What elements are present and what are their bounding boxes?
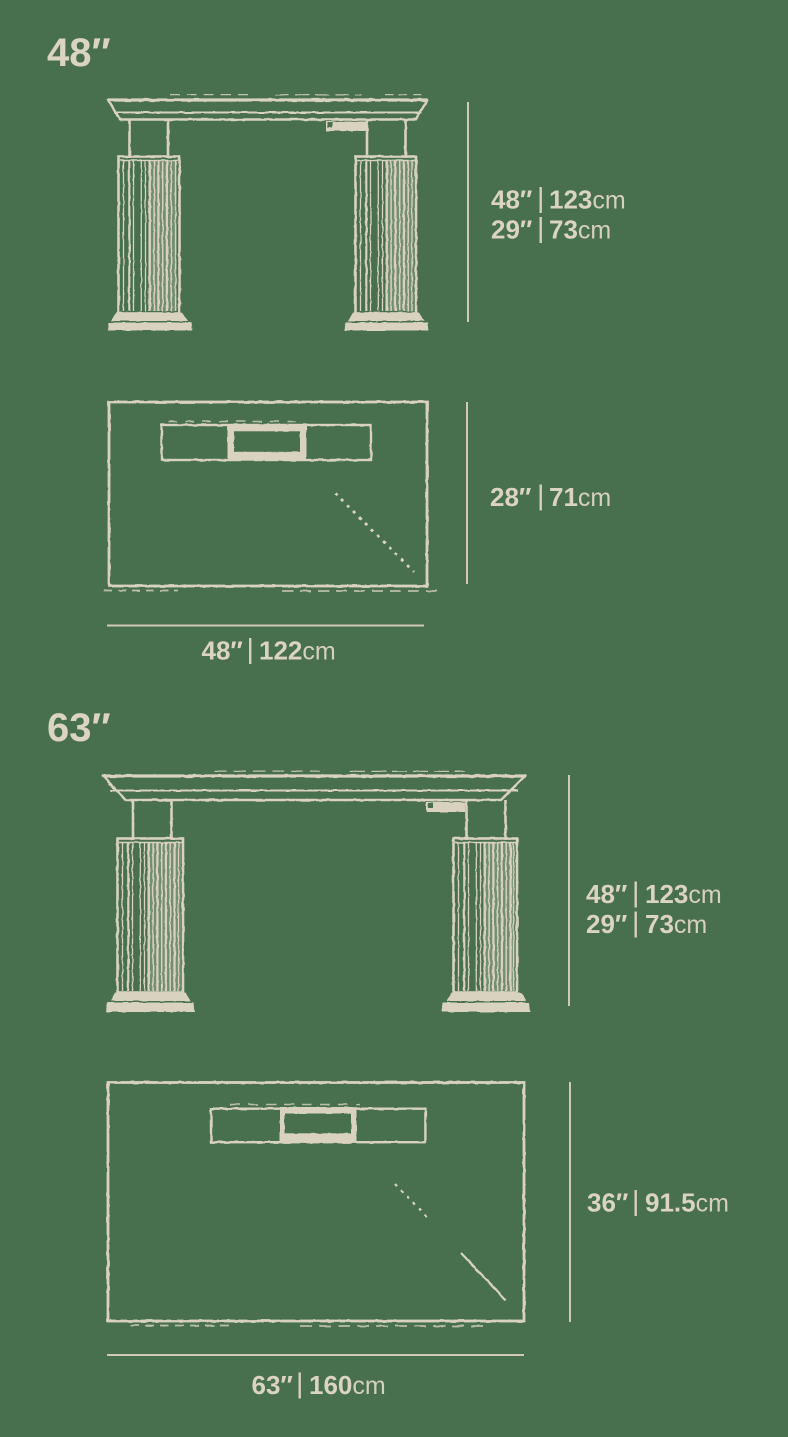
- svg-text:123cm: 123cm: [549, 185, 626, 215]
- svg-text:91.5cm: 91.5cm: [645, 1188, 729, 1218]
- svg-text:29″: 29″: [491, 215, 532, 245]
- svg-text:122cm: 122cm: [259, 636, 336, 666]
- svg-text:36″: 36″: [587, 1188, 628, 1218]
- svg-text:63″: 63″: [252, 1370, 293, 1400]
- svg-text:160cm: 160cm: [309, 1370, 386, 1400]
- svg-text:123cm: 123cm: [645, 879, 722, 909]
- svg-text:73cm: 73cm: [645, 909, 707, 939]
- svg-text:48″: 48″: [47, 31, 111, 75]
- svg-text:29″: 29″: [586, 909, 627, 939]
- svg-text:73cm: 73cm: [549, 215, 611, 245]
- svg-text:48″: 48″: [202, 636, 243, 666]
- svg-text:48″: 48″: [491, 185, 532, 215]
- svg-text:71cm: 71cm: [549, 482, 611, 512]
- svg-text:28″: 28″: [490, 482, 531, 512]
- svg-text:48″: 48″: [586, 879, 627, 909]
- svg-text:63″: 63″: [47, 706, 111, 750]
